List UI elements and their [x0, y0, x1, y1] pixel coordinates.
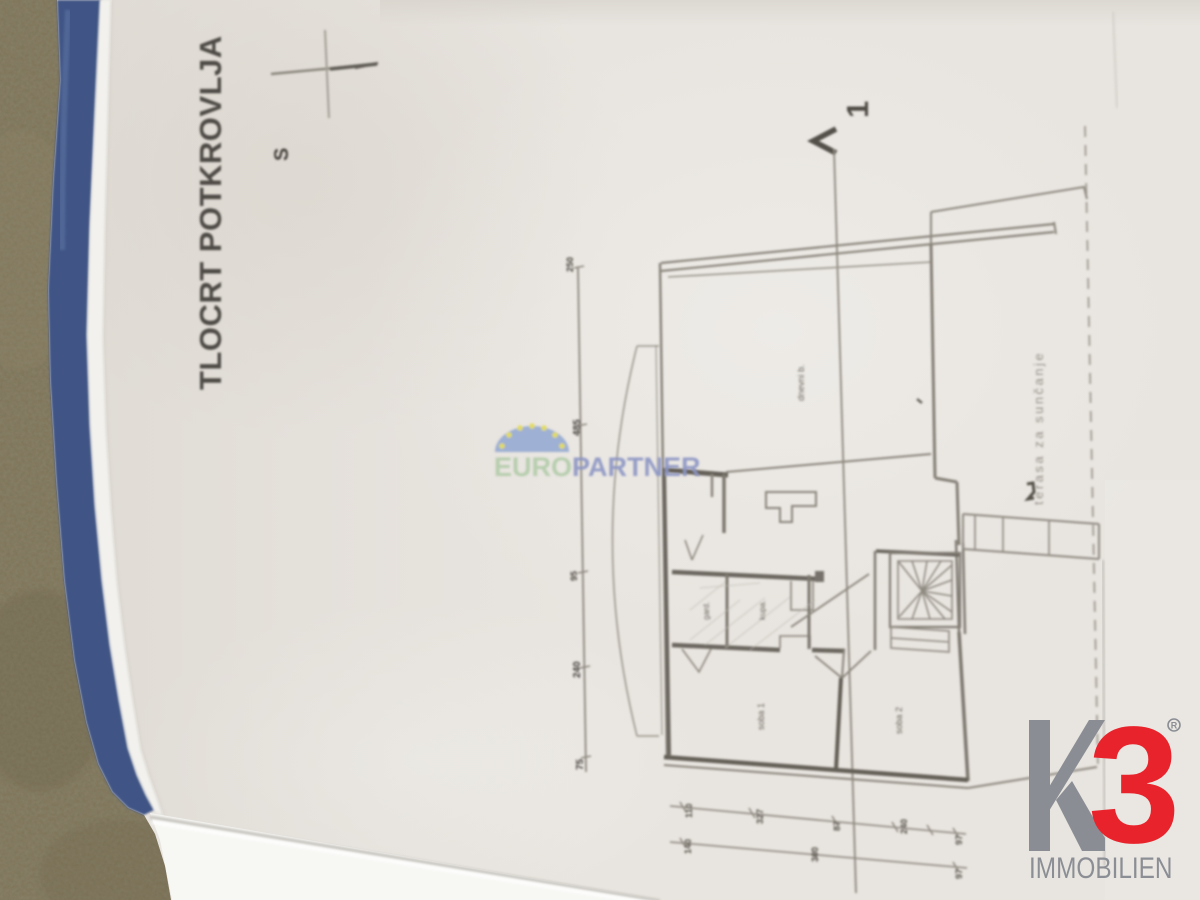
- svg-text:87: 87: [832, 821, 842, 831]
- svg-text:EURO: EURO: [494, 452, 572, 482]
- svg-text:250: 250: [565, 257, 575, 272]
- svg-text:gard.: gard.: [702, 602, 711, 620]
- svg-text:97: 97: [954, 869, 964, 879]
- svg-text:485: 485: [572, 419, 583, 436]
- svg-text:soba 1: soba 1: [756, 703, 766, 730]
- svg-text:95: 95: [569, 571, 579, 581]
- svg-text:327: 327: [755, 809, 765, 824]
- svg-text:1: 1: [840, 101, 875, 118]
- svg-text:140: 140: [683, 839, 693, 854]
- svg-text:75: 75: [575, 758, 586, 770]
- svg-text:240: 240: [572, 661, 583, 678]
- svg-text:PARTNER: PARTNER: [572, 452, 701, 482]
- svg-text:soba 2: soba 2: [894, 707, 904, 734]
- svg-text:terasa za sunčanje: terasa za sunčanje: [1031, 351, 1046, 505]
- svg-text:240: 240: [899, 819, 909, 834]
- svg-text:97: 97: [954, 835, 964, 845]
- svg-text:R: R: [1171, 721, 1178, 731]
- svg-text:dnevni b.: dnevni b.: [796, 364, 806, 401]
- svg-text:IMMOBILIEN: IMMOBILIEN: [1029, 851, 1173, 885]
- svg-text:110: 110: [684, 803, 694, 818]
- svg-text:S: S: [271, 148, 293, 161]
- svg-text:kupa.: kupa.: [758, 600, 767, 620]
- svg-text:360: 360: [810, 847, 820, 862]
- svg-text:TLOCRT POTKROVLJA: TLOCRT POTKROVLJA: [193, 35, 228, 390]
